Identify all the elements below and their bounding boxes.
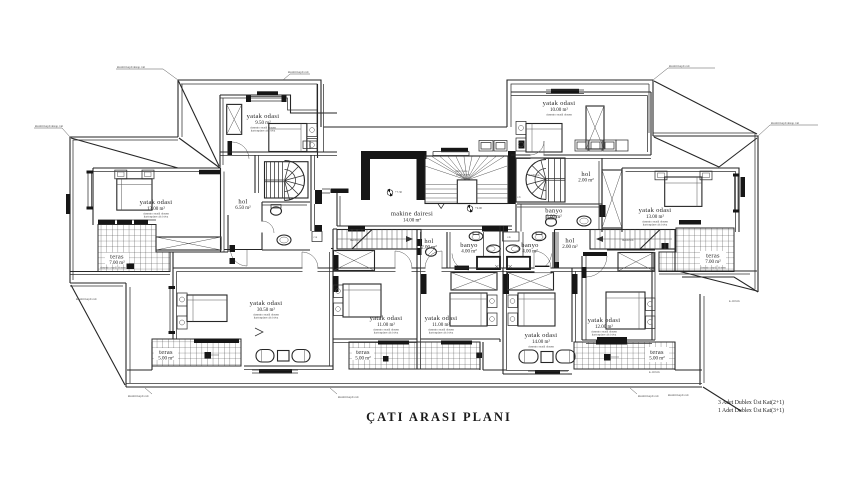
svg-text:+9.00: +9.00 (475, 206, 482, 210)
svg-text:banyo: banyo (545, 208, 562, 215)
svg-text:teras: teras (159, 349, 173, 356)
svg-text:teras: teras (706, 253, 720, 260)
svg-text:3 Adet Dublex Üst Kat(2+1): 3 Adet Dublex Üst Kat(2+1) (718, 399, 784, 406)
svg-text:yatak odasi: yatak odasi (370, 315, 403, 322)
svg-text:kartonpiyer alci siva: kartonpiyer alci siva (592, 333, 617, 337)
svg-text:yatak odasi: yatak odasi (247, 113, 280, 120)
svg-text:6.50 m²: 6.50 m² (235, 205, 251, 211)
svg-text:5.00 m²: 5.00 m² (649, 356, 665, 362)
svg-text:7.00 m²: 7.00 m² (705, 259, 721, 265)
svg-text:kiremit kapli ahsap cati: kiremit kapli ahsap cati (117, 65, 145, 69)
svg-text:kiremit kapli cati: kiremit kapli cati (288, 70, 309, 74)
svg-text:14.00 m²: 14.00 m² (403, 218, 421, 224)
svg-text:banyo: banyo (460, 242, 477, 249)
svg-text:hol: hol (424, 238, 433, 245)
svg-text:4.00 m²: 4.00 m² (522, 249, 538, 255)
svg-text:cimento esasli dosem: cimento esasli dosem (100, 266, 126, 270)
svg-text:k-110cm: k-110cm (649, 370, 660, 374)
svg-text:merdiven: merdiven (528, 173, 540, 177)
svg-text:kiremit kapli cati: kiremit kapli cati (128, 394, 149, 398)
svg-text:yatak odasi: yatak odasi (639, 207, 672, 214)
svg-text:c.k: c.k (314, 235, 318, 239)
svg-text:kartonpiyer alci siva: kartonpiyer alci siva (643, 223, 668, 227)
svg-text:merdiven: merdiven (350, 238, 362, 242)
svg-text:yatak odasi: yatak odasi (140, 199, 173, 206)
svg-text:cimento esasli dosem: cimento esasli dosem (546, 113, 572, 117)
svg-text:kiremit kapli cati: kiremit kapli cati (668, 393, 689, 397)
svg-text:teras: teras (356, 349, 370, 356)
svg-text:kiremit kapli cati: kiremit kapli cati (638, 394, 659, 398)
svg-text:merdiven: merdiven (622, 238, 634, 242)
svg-text:hol: hol (581, 171, 590, 178)
svg-text:yatak odasi: yatak odasi (250, 300, 283, 307)
svg-text:yatak odasi: yatak odasi (543, 100, 576, 107)
svg-text:yatak odasi: yatak odasi (525, 332, 558, 339)
svg-text:kartonpiyer alci siva: kartonpiyer alci siva (429, 331, 454, 335)
svg-text:cimento esasli dosem: cimento esasli dosem (528, 345, 554, 349)
svg-text:kartonpiyer alci siva: kartonpiyer alci siva (144, 215, 169, 219)
svg-text:makine dairesi: makine dairesi (391, 211, 433, 218)
svg-text:kartonpiyer alci siva: kartonpiyer alci siva (251, 129, 276, 133)
svg-text:2.00 m²: 2.00 m² (562, 244, 578, 250)
svg-text:teras: teras (650, 349, 664, 356)
svg-text:kiremit kapli cati: kiremit kapli cati (76, 297, 97, 301)
svg-text:ÇATI ARASI PLANI: ÇATI ARASI PLANI (366, 410, 512, 424)
svg-text:teras: teras (110, 254, 124, 261)
svg-text:2.00 m²: 2.00 m² (578, 178, 594, 184)
svg-text:asagi iniyor: asagi iniyor (456, 172, 470, 176)
svg-text:5.00 m²: 5.00 m² (158, 356, 174, 362)
svg-text:4.00 m²: 4.00 m² (461, 249, 477, 255)
svg-text:banyo: banyo (521, 242, 538, 249)
svg-text:kiremit kapli cati: kiremit kapli cati (669, 64, 690, 68)
svg-text:c.b: c.b (517, 195, 521, 199)
svg-text:+7.30: +7.30 (395, 190, 402, 194)
svg-text:kartonpiyer alci siva: kartonpiyer alci siva (374, 331, 399, 335)
svg-text:k-110cm: k-110cm (729, 299, 740, 303)
svg-text:kiremit kapli cati: kiremit kapli cati (338, 395, 359, 399)
svg-text:kiremit kapli ahsap cati: kiremit kapli ahsap cati (771, 121, 799, 125)
svg-text:hol: hol (238, 199, 247, 206)
svg-text:kartonpiyer alci siva: kartonpiyer alci siva (254, 316, 279, 320)
svg-text:c.k: c.k (507, 235, 511, 239)
svg-text:5.00 m²: 5.00 m² (355, 356, 371, 362)
svg-text:yatak odasi: yatak odasi (425, 315, 458, 322)
svg-text:yatak odasi: yatak odasi (588, 317, 621, 324)
svg-text:hol: hol (565, 238, 574, 245)
svg-text:cimento esasli dosem: cimento esasli dosem (700, 266, 726, 270)
svg-text:kiremit kapli ahsap cati: kiremit kapli ahsap cati (35, 124, 63, 128)
svg-text:1 Adet Dublex Üst Kat(3+1): 1 Adet Dublex Üst Kat(3+1) (718, 407, 784, 414)
